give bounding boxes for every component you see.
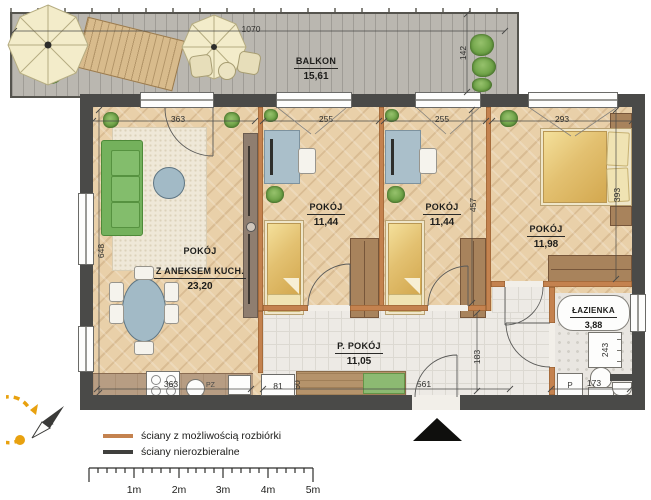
legend-row-structural: ściany nierozbieralne bbox=[103, 446, 240, 458]
bathroom-label: ŁAZIENKA 3,88 bbox=[560, 299, 627, 331]
legend-swatch-demolishable bbox=[103, 434, 133, 438]
entrance-opening bbox=[412, 395, 460, 410]
room2-name: POKÓJ bbox=[307, 202, 344, 215]
window-low: 81 bbox=[261, 374, 295, 396]
partition-wall bbox=[258, 107, 263, 311]
nightstand bbox=[610, 206, 632, 226]
floor-plan: 1070 142 BALKON 15,61 363 PZ bbox=[0, 0, 651, 500]
window bbox=[276, 92, 352, 108]
bathroom-name: ŁAZIENKA bbox=[570, 306, 617, 318]
window bbox=[415, 92, 481, 108]
partition-wall bbox=[379, 107, 384, 311]
compass-rotate-icon: N bbox=[6, 394, 78, 466]
living-area: 23,20 bbox=[140, 281, 260, 294]
dimension-living-window: 363 bbox=[163, 114, 193, 124]
bedroom-wardrobe bbox=[548, 255, 632, 283]
living-room-label: POKÓJ Z ANEKSEM KUCH. 23,20 bbox=[140, 240, 260, 294]
dining-chair bbox=[134, 341, 154, 355]
balcony-area: 15,61 bbox=[286, 71, 346, 84]
dimension-bedroom-window: 293 bbox=[547, 114, 577, 124]
window bbox=[630, 294, 646, 332]
entrance-arrow-icon bbox=[405, 412, 475, 446]
living-name2: Z ANEKSEM KUCH. bbox=[154, 266, 246, 279]
bedroom-label: POKÓJ 11,98 bbox=[516, 218, 576, 252]
partition-wall bbox=[263, 305, 308, 311]
scale-label-1m: 1m bbox=[127, 484, 142, 496]
balcony-chair-icon bbox=[236, 50, 261, 75]
exterior-wall-bottom bbox=[80, 395, 645, 410]
dimension-balcony-length: 1070 bbox=[234, 24, 268, 34]
balcony-table-icon bbox=[218, 62, 236, 80]
kitchen-pz-label: PZ bbox=[206, 382, 215, 389]
dishwasher bbox=[228, 375, 251, 395]
dimension-room3-side: 457 bbox=[468, 192, 478, 218]
dining-chair bbox=[109, 304, 124, 324]
bathroom-area: 3,88 bbox=[560, 320, 627, 331]
legend-label-demolishable: ściany z możliwością rozbiórki bbox=[141, 430, 281, 442]
hall-floor-extension bbox=[492, 287, 549, 313]
desk-chair bbox=[419, 148, 437, 174]
scale-label-2m: 2m bbox=[172, 484, 187, 496]
dimension-living-side: 648 bbox=[96, 238, 106, 264]
washing-machine: P bbox=[557, 373, 583, 396]
wall-stub bbox=[610, 374, 632, 381]
hall-area: 11,05 bbox=[327, 356, 391, 369]
partition-wall bbox=[543, 281, 632, 287]
single-bed bbox=[385, 220, 425, 315]
legend-swatch-structural bbox=[103, 450, 133, 454]
desk-chair bbox=[298, 148, 316, 174]
hall-name: P. POKÓJ bbox=[335, 341, 383, 354]
single-bed bbox=[264, 220, 304, 315]
umbrella-icon bbox=[3, 0, 93, 90]
living-name: POKÓJ bbox=[183, 246, 216, 256]
bedroom-name: POKÓJ bbox=[527, 224, 564, 237]
desk bbox=[264, 130, 300, 184]
scale-bar: 1m 2m 3m 4m 5m bbox=[86, 464, 320, 498]
room3-label: POKÓJ 11,44 bbox=[412, 196, 472, 230]
room3-area: 11,44 bbox=[412, 217, 472, 230]
room3-name: POKÓJ bbox=[423, 202, 460, 215]
dining-chair bbox=[109, 282, 124, 302]
window bbox=[140, 92, 214, 108]
partition-wall bbox=[549, 287, 555, 323]
balcony-label: BALKON 15,61 bbox=[286, 50, 346, 84]
dimension-bath-width: 173 bbox=[583, 378, 605, 388]
dimension-hall-side: 183 bbox=[472, 344, 482, 370]
bench-cushion bbox=[363, 373, 405, 394]
window bbox=[528, 92, 618, 108]
dimension-bath-radiator: 243 bbox=[600, 337, 610, 363]
door-opening bbox=[549, 323, 555, 367]
balcony-chair-icon bbox=[189, 54, 214, 79]
exterior-wall-right bbox=[632, 107, 645, 395]
bathroom-sink bbox=[612, 382, 632, 396]
door-opening bbox=[505, 281, 543, 287]
bedroom-area: 11,98 bbox=[516, 239, 576, 252]
door-opening bbox=[308, 305, 350, 311]
partition-wall bbox=[468, 305, 486, 311]
room2-label: POKÓJ 11,44 bbox=[296, 196, 356, 230]
partition-wall bbox=[258, 311, 263, 373]
coffee-table bbox=[153, 167, 185, 199]
scale-label-3m: 3m bbox=[216, 484, 231, 496]
dimension-room3-window: 255 bbox=[427, 114, 457, 124]
legend-label-structural: ściany nierozbieralne bbox=[141, 446, 240, 458]
room2-area: 11,44 bbox=[296, 217, 356, 230]
legend-row-demolishable: ściany z możliwością rozbiórki bbox=[103, 430, 281, 442]
dining-chair bbox=[164, 304, 179, 324]
dimension-hall-window: 81 bbox=[273, 381, 282, 391]
desk bbox=[385, 130, 421, 184]
sofa bbox=[101, 140, 143, 236]
dimension-kitchen: 363 bbox=[158, 379, 184, 389]
partition-wall bbox=[549, 367, 555, 395]
dimension-balcony-depth: 142 bbox=[458, 40, 468, 66]
partition-wall bbox=[491, 281, 505, 287]
window bbox=[78, 193, 94, 265]
scale-label-4m: 4m bbox=[261, 484, 276, 496]
hall-label: P. POKÓJ 11,05 bbox=[327, 335, 391, 369]
dimension-hall-length: 561 bbox=[411, 379, 437, 389]
window bbox=[78, 326, 94, 372]
dimension-bedroom-side: 393 bbox=[612, 182, 622, 208]
dimension-room2-window: 255 bbox=[311, 114, 341, 124]
balcony-name: BALKON bbox=[294, 56, 338, 69]
washer-label: P bbox=[567, 381, 572, 390]
scale-label-5m: 5m bbox=[306, 484, 320, 496]
door-opening bbox=[428, 305, 468, 311]
partition-wall bbox=[350, 305, 428, 311]
